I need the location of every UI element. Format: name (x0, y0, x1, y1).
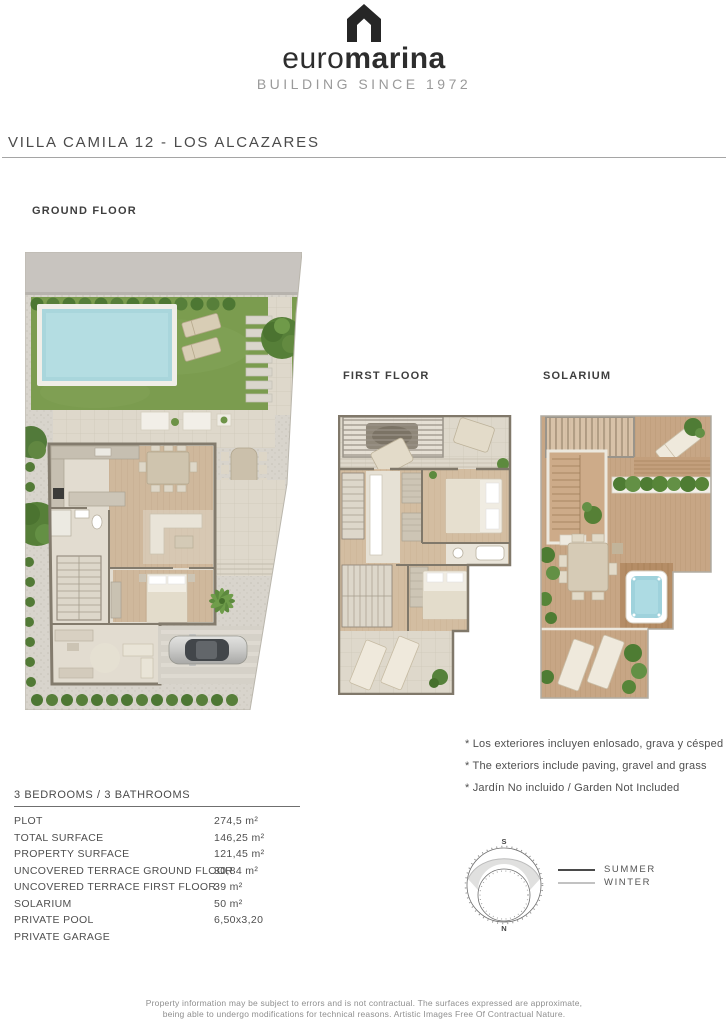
spec-label: PRIVATE POOL (14, 914, 214, 926)
spec-value: 30,84 m² (214, 865, 258, 877)
spec-label: PRIVATE GARAGE (14, 931, 214, 943)
table-row: PROPERTY SURFACE 121,45 m² (14, 846, 300, 863)
ground-floor-label: GROUND FLOOR (32, 205, 137, 217)
logo-word-light: euro (282, 42, 344, 75)
sun-legend: SUMMER WINTER (558, 863, 656, 889)
logo: euromarina BUILDING SINCE 1972 (0, 4, 728, 92)
first-floor-plan (338, 415, 512, 695)
solarium-plan (540, 415, 712, 700)
page-title: VILLA CAMILA 12 - LOS ALCAZARES (8, 134, 320, 151)
road-strip (25, 252, 302, 295)
spec-value: 121,45 m² (214, 848, 264, 860)
legend-row-winter: WINTER (558, 876, 656, 889)
spec-label: SOLARIUM (14, 898, 214, 910)
first-floor-label: FIRST FLOOR (343, 370, 430, 382)
compass-north-label: N (501, 924, 506, 933)
spec-value: 39 m² (214, 881, 243, 893)
specs-table: 3 BEDROOMS / 3 BATHROOMS PLOT 274,5 m² T… (14, 789, 300, 945)
exterior-notes: * Los exteriores incluyen enlosado, grav… (465, 733, 723, 799)
spec-value: 6,50x3,20 (214, 914, 263, 926)
ground-floor-plan (25, 252, 302, 710)
table-row: SOLARIUM 50 m² (14, 896, 300, 913)
spec-value: 274,5 m² (214, 815, 258, 827)
planter-box (612, 476, 712, 493)
table-row: UNCOVERED TERRACE FIRST FLOOR 39 m² (14, 879, 300, 896)
disclaimer-line: being able to undergo modifications for … (0, 1009, 728, 1020)
car-icon (169, 634, 247, 666)
swimming-pool (37, 304, 177, 386)
note-line: * The exteriors include paving, gravel a… (465, 755, 723, 777)
spec-label: PLOT (14, 815, 214, 827)
house-icon (344, 4, 384, 42)
jacuzzi (620, 563, 673, 629)
spec-label: UNCOVERED TERRACE GROUND FLOOR (14, 865, 214, 877)
sun-path-diagram: S N (458, 835, 550, 933)
compass-south-label: S (501, 837, 506, 846)
first-floor-interior (340, 469, 510, 631)
winter-label: WINTER (604, 877, 651, 888)
note-line: * Los exteriores incluyen enlosado, grav… (465, 733, 723, 755)
logo-tagline: BUILDING SINCE 1972 (0, 76, 728, 92)
note-line: * Jardín No incluido / Garden Not Includ… (465, 777, 723, 799)
solarium-stairs (548, 451, 606, 545)
disclaimer: Property information may be subject to e… (0, 998, 728, 1019)
winter-line-icon (558, 882, 595, 884)
specs-header: 3 BEDROOMS / 3 BATHROOMS (14, 789, 300, 807)
table-row: UNCOVERED TERRACE GROUND FLOOR 30,84 m² (14, 863, 300, 880)
spec-value: 50 m² (214, 898, 243, 910)
lower-terrace (339, 631, 453, 694)
logo-word-bold: marina (344, 42, 445, 75)
table-row: PLOT 274,5 m² (14, 813, 300, 830)
table-row: TOTAL SURFACE 146,25 m² (14, 830, 300, 847)
spec-value: 146,25 m² (214, 832, 264, 844)
legend-row-summer: SUMMER (558, 863, 656, 876)
title-divider (2, 157, 726, 158)
summer-label: SUMMER (604, 864, 656, 875)
brochure-page: euromarina BUILDING SINCE 1972 VILLA CAM… (0, 0, 728, 1024)
disclaimer-line: Property information may be subject to e… (0, 998, 728, 1009)
table-row: PRIVATE GARAGE (14, 929, 300, 946)
logo-wordmark: euromarina (0, 44, 728, 74)
table-row: PRIVATE POOL 6,50x3,20 (14, 912, 300, 929)
spec-label: TOTAL SURFACE (14, 832, 214, 844)
summer-line-icon (558, 869, 595, 871)
spec-label: PROPERTY SURFACE (14, 848, 214, 860)
solarium-label: SOLARIUM (543, 370, 611, 382)
spec-label: UNCOVERED TERRACE FIRST FLOOR (14, 881, 214, 893)
